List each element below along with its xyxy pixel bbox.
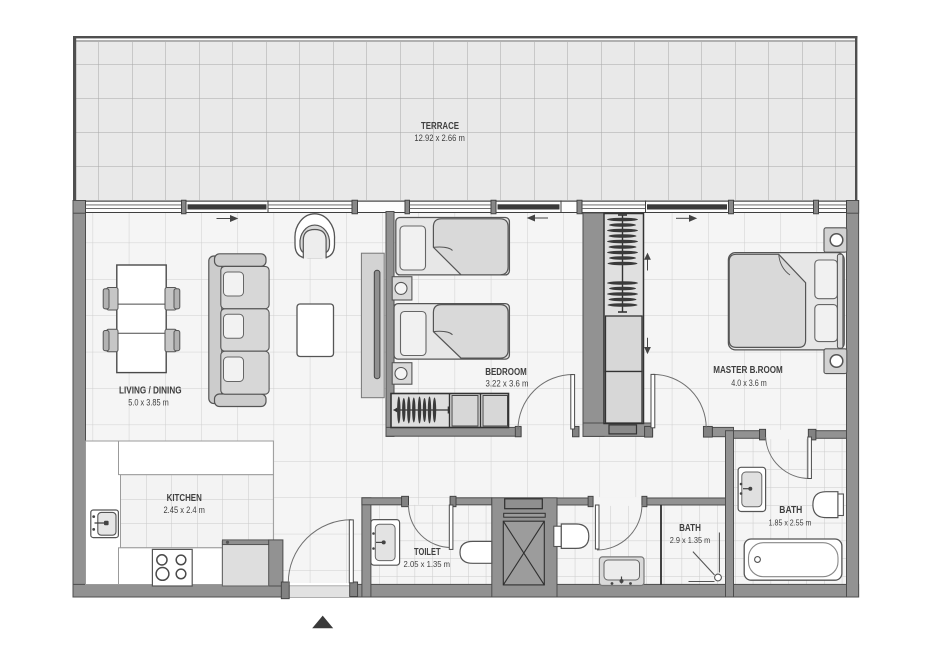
svg-text:TOILET: TOILET [414, 547, 441, 558]
svg-text:3.22 x 3.6 m: 3.22 x 3.6 m [486, 378, 529, 388]
svg-text:1.85 x 2.55 m: 1.85 x 2.55 m [769, 518, 812, 528]
svg-text:2.9 x 1.35 m: 2.9 x 1.35 m [670, 535, 711, 545]
svg-text:BATH: BATH [779, 505, 802, 516]
svg-text:LIVING / DINING: LIVING / DINING [119, 386, 182, 397]
svg-text:5.0 x 3.85 m: 5.0 x 3.85 m [128, 398, 169, 408]
svg-text:MASTER B.ROOM: MASTER B.ROOM [713, 365, 783, 376]
svg-text:BATH: BATH [679, 523, 701, 534]
svg-text:KITCHEN: KITCHEN [167, 493, 202, 504]
svg-text:BEDROOM: BEDROOM [485, 367, 527, 378]
svg-text:2.05 x 1.35 m: 2.05 x 1.35 m [404, 559, 451, 569]
svg-text:4.0 x 3.6 m: 4.0 x 3.6 m [731, 378, 767, 388]
svg-text:2.45 x 2.4 m: 2.45 x 2.4 m [164, 505, 205, 515]
svg-text:TERRACE: TERRACE [421, 121, 459, 132]
svg-text:12.92 x 2.66 m: 12.92 x 2.66 m [414, 133, 465, 143]
